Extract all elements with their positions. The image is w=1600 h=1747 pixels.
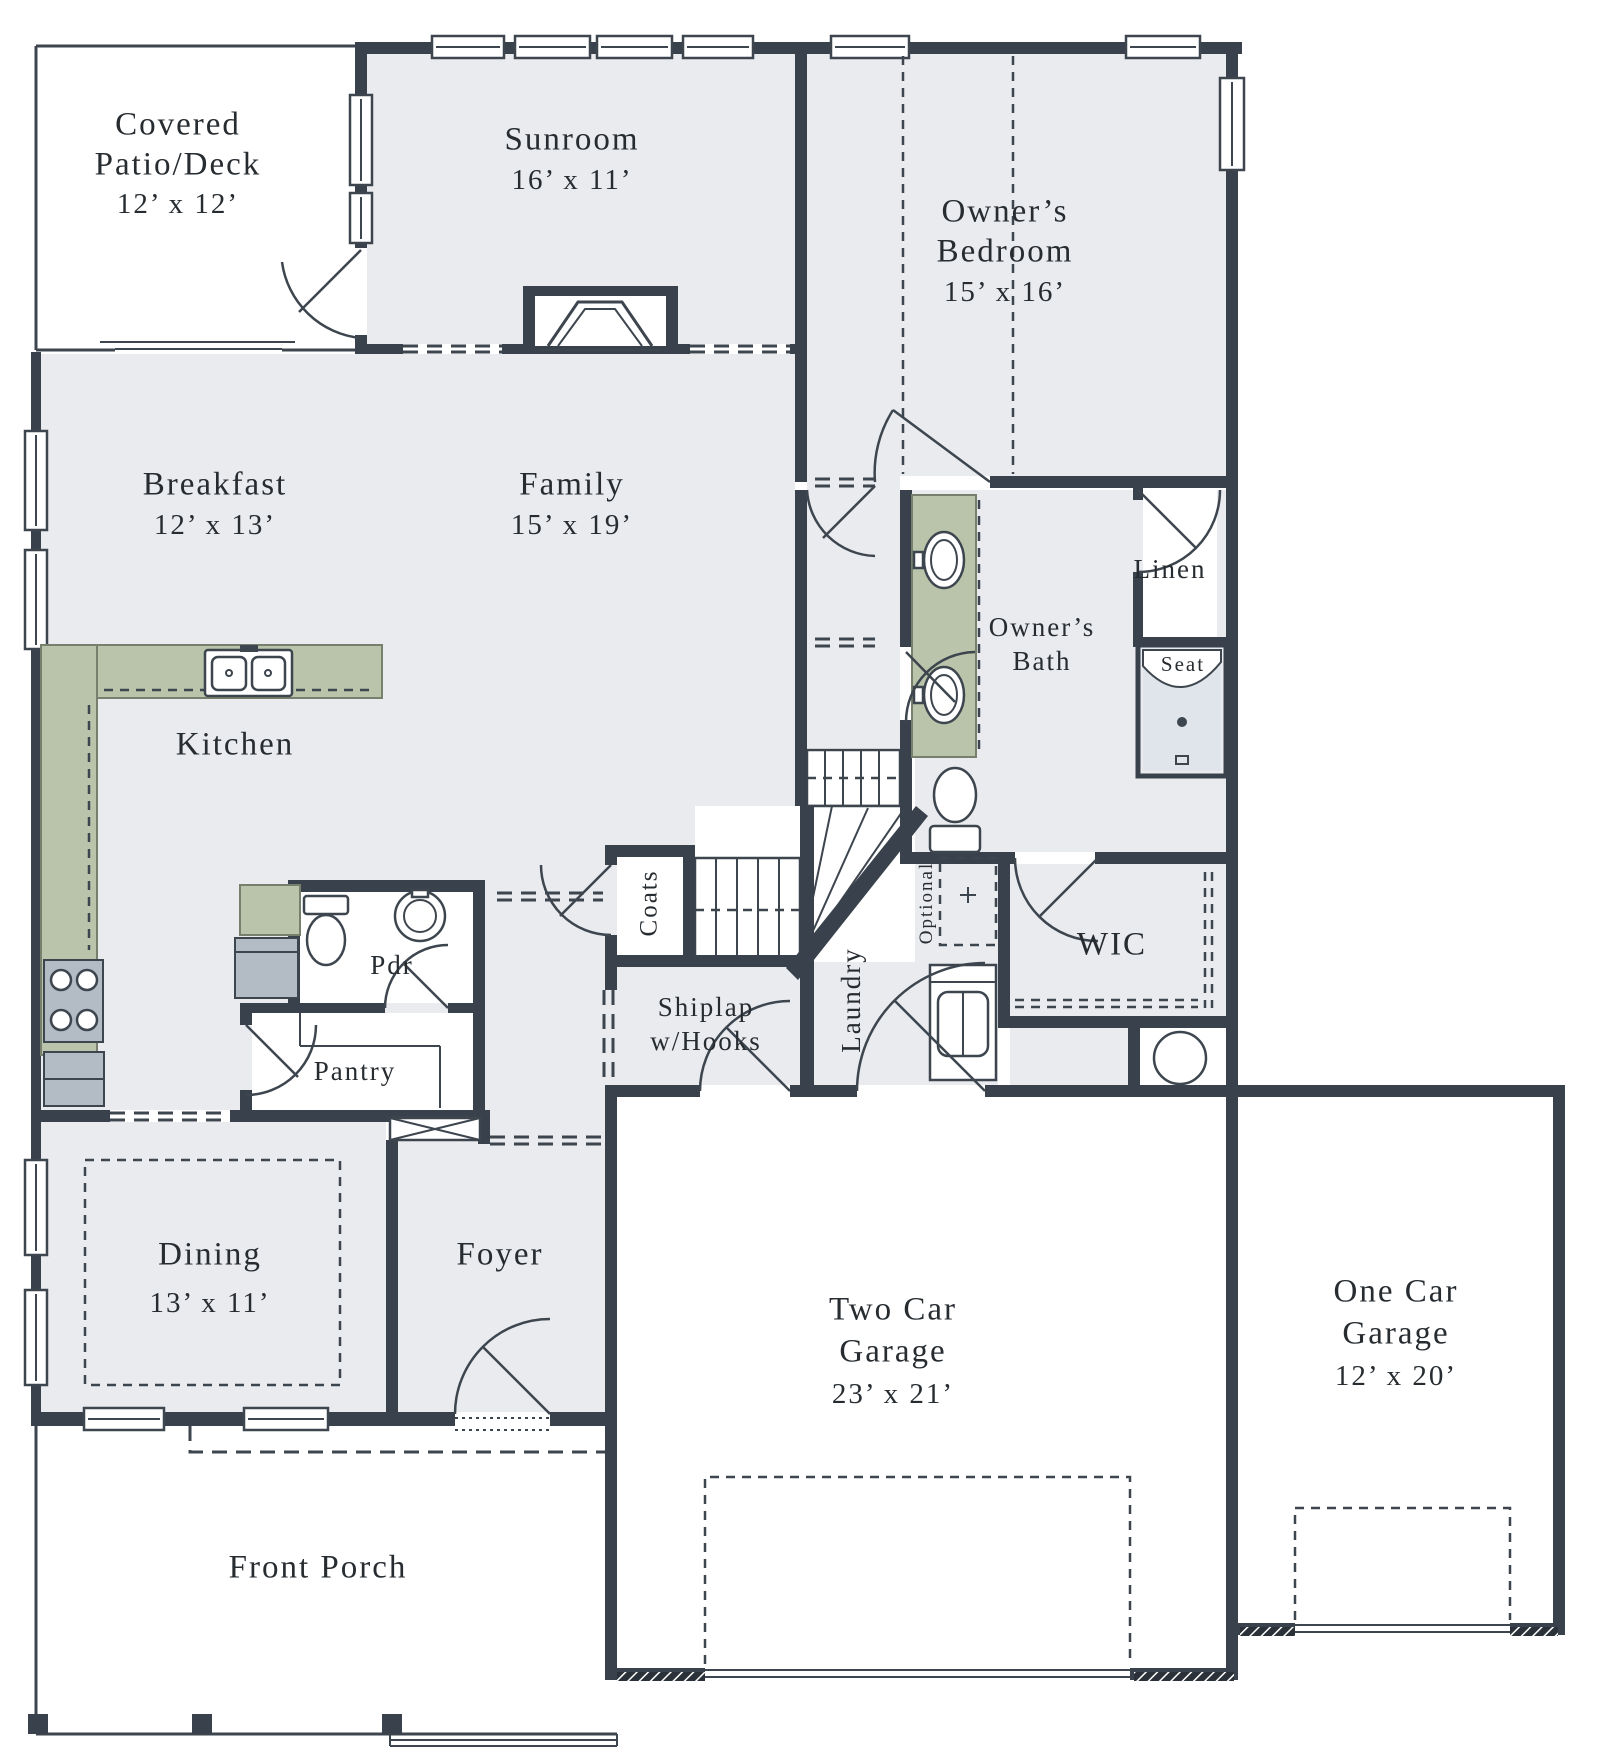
room-label-linen: Linen: [1134, 553, 1207, 587]
room-label-garage2-1: Two Car: [829, 1289, 957, 1330]
patio-door: [282, 250, 361, 338]
room-label-pdr: Pdr: [370, 949, 414, 983]
room-label-coats: Coats: [633, 870, 664, 937]
porch-post: [192, 1714, 212, 1734]
refrigerator-icon: [44, 1052, 104, 1106]
toilet-icon: [304, 896, 348, 965]
washer-dryer-icon: [930, 965, 996, 1080]
room-label-sunroom: Sunroom: [504, 119, 639, 160]
wall-oven-icon: [235, 938, 298, 998]
room-dims-garage2: 23’ x 21’: [832, 1376, 954, 1412]
room-label-kitchen: Kitchen: [176, 724, 294, 765]
room-label-porch: Front Porch: [229, 1547, 408, 1588]
room-dims-dining: 13’ x 11’: [149, 1285, 270, 1321]
room-label-laundry: Laundry: [835, 947, 869, 1052]
kitchen-sink-icon: [205, 645, 292, 696]
room-dims-garage1: 12’ x 20’: [1335, 1358, 1457, 1394]
porch-post: [28, 1714, 48, 1734]
room-dims-sunroom: 16’ x 11’: [511, 162, 632, 198]
room-label-bedroom-2: Bedroom: [937, 231, 1074, 272]
room-label-dining: Dining: [158, 1234, 262, 1275]
threshold-hatch: [617, 1672, 705, 1681]
porch-steps: [390, 1734, 617, 1746]
room-label-shiplap-2: w/Hooks: [650, 1025, 762, 1059]
room-dims-family: 15’ x 19’: [511, 507, 633, 543]
room-label-foyer: Foyer: [457, 1234, 544, 1275]
room-dims-breakfast: 12’ x 13’: [154, 507, 276, 543]
room-dims-patio: 12’ x 12’: [117, 186, 239, 222]
room-label-breakfast: Breakfast: [143, 464, 287, 505]
room-label-garage2-2: Garage: [839, 1331, 946, 1372]
threshold-hatch: [1134, 1672, 1234, 1681]
room-label-pantry: Pantry: [314, 1055, 397, 1089]
garage-door-track-two-car: [705, 1477, 1130, 1664]
room-label-patio-1: Covered: [115, 104, 241, 145]
room-label-optional: Optional: [915, 862, 939, 945]
garage-door-track-one-car: [1295, 1508, 1510, 1620]
threshold-hatch: [1240, 1627, 1295, 1636]
pedestal-sink-icon: [395, 890, 445, 941]
room-label-bath-1: Owner’s: [989, 611, 1095, 645]
porch-post: [382, 1714, 402, 1734]
room-label-garage1-2: Garage: [1342, 1313, 1449, 1354]
double-vanity: [912, 495, 979, 757]
room-label-bath-2: Bath: [1013, 645, 1072, 679]
floor-plan-drawing: [0, 0, 1600, 1747]
room-label-shiplap-1: Shiplap: [658, 991, 755, 1025]
room-label-wic: WIC: [1077, 924, 1147, 965]
foyer-bench: [390, 1118, 480, 1140]
floor-plan: Covered Patio/Deck 12’ x 12’ Sunroom 16’…: [0, 0, 1600, 1747]
garage-openings: [617, 1625, 1558, 1681]
room-dims-bedroom: 15’ x 16’: [944, 274, 1066, 310]
room-label-patio-2: Patio/Deck: [95, 144, 262, 185]
room-label-seat: Seat: [1161, 651, 1205, 677]
fireplace: [523, 286, 678, 354]
room-label-garage1-1: One Car: [1334, 1271, 1459, 1312]
room-label-family: Family: [519, 464, 625, 505]
threshold-hatch: [1510, 1627, 1558, 1636]
cooktop-icon: [44, 960, 103, 1042]
toilet-icon: [930, 768, 980, 852]
water-heater-icon: [1154, 1032, 1206, 1084]
room-label-bedroom-1: Owner’s: [941, 191, 1068, 232]
